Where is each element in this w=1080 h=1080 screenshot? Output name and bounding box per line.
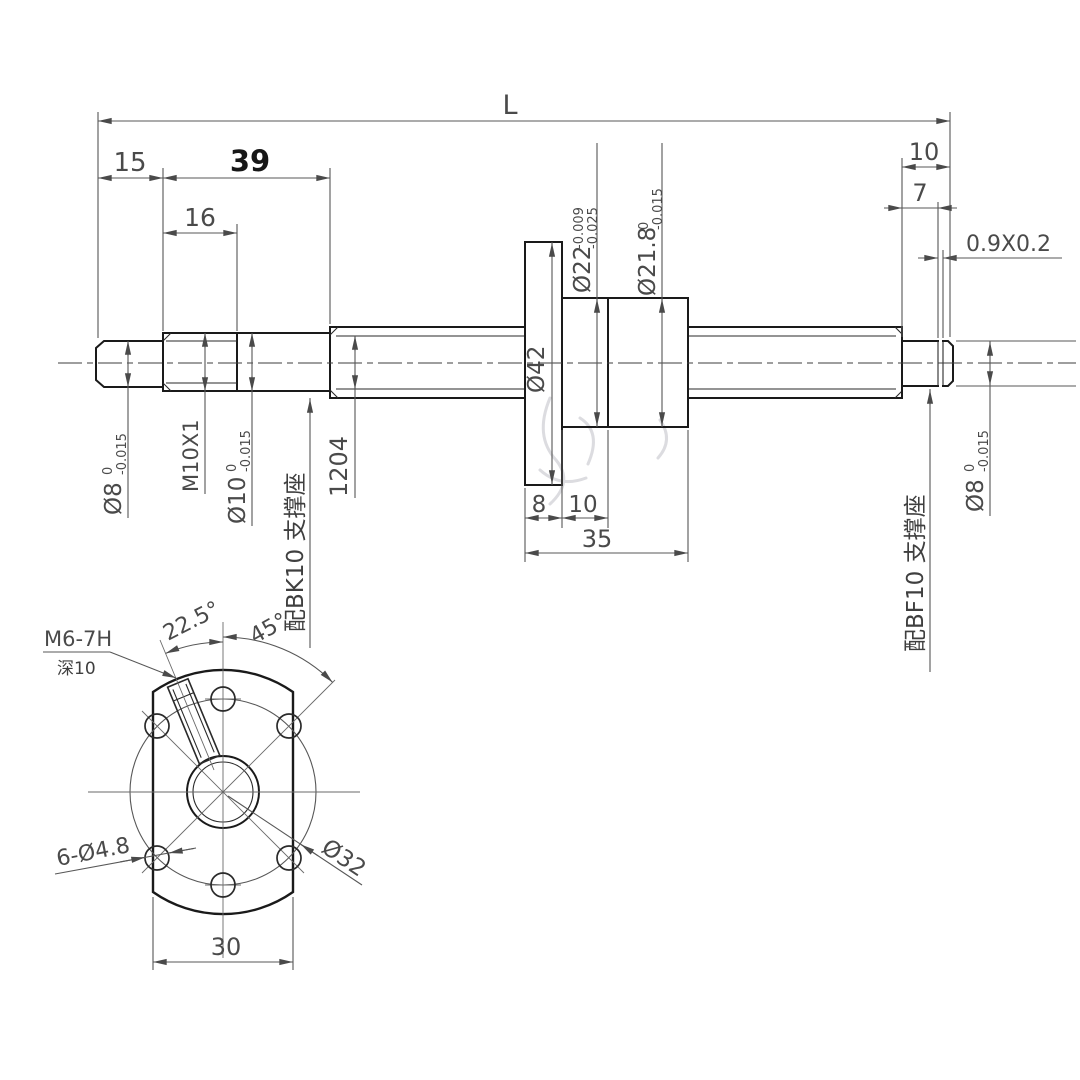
dim-width-across-flats-text: 30	[211, 933, 242, 961]
d218-label: Ø21.8	[635, 227, 661, 296]
d22-tol-lower: -0.025	[586, 207, 601, 249]
d10-label: Ø10	[225, 477, 251, 524]
d218-tol-upper: 0	[637, 222, 652, 230]
dim-overall-length: L	[98, 90, 950, 121]
dim-right-journal-text: 10	[909, 138, 940, 166]
dim-d10: Ø10 0 -0.015	[225, 333, 254, 526]
thread-spec-label: M10X1	[179, 419, 203, 492]
dim-thread-length: 16	[163, 203, 237, 233]
dim-flange-thickness-text: 8	[532, 492, 547, 518]
d218-tol-lower: -0.015	[651, 188, 666, 230]
dim-angle-tap-text: 22.5°	[159, 597, 224, 647]
leader-tap: M6-7H 深10	[43, 627, 176, 679]
side-view: L 15 39 16 Ø8	[58, 90, 1076, 672]
end-view: 22.5° 45° M6-7H 深10 6-Ø4.8	[43, 597, 370, 970]
d10-tol-lower: -0.015	[239, 430, 254, 472]
d22-label: Ø22	[570, 246, 596, 293]
d10-tol-upper: 0	[225, 464, 240, 472]
d8-left-tol-lower: -0.015	[115, 433, 130, 475]
dim-left-zone-text: 39	[230, 144, 270, 178]
bolt-holes-label: 6-Ø4.8	[54, 833, 132, 872]
dim-groove-size: 0.9X0.2	[918, 232, 1062, 258]
d8-right-tol-lower: -0.015	[977, 430, 992, 472]
d22-tol-upper: -0.009	[572, 207, 587, 249]
d8-right-tol-upper: 0	[963, 464, 978, 472]
d8-left-tol-upper: 0	[101, 467, 116, 475]
dim-angle-tap: 22.5°	[159, 597, 224, 654]
drawing-sheet: L 15 39 16 Ø8	[0, 0, 1080, 1080]
dim-d218: Ø21.8 0 -0.015	[635, 143, 666, 427]
bolt-circle-label: Ø32	[317, 834, 371, 882]
dim-left-end: 15	[98, 148, 163, 178]
faint-watermark	[540, 398, 667, 504]
dim-thread-spec: M10X1	[179, 333, 205, 494]
dim-left-zone: 39	[163, 144, 330, 178]
d8-left-label: Ø8	[101, 482, 127, 515]
dim-d8-left: Ø8 0 -0.015	[101, 341, 130, 518]
d8-right-label: Ø8	[963, 479, 989, 512]
tap-depth-label: 深10	[57, 659, 96, 679]
leader-bolt-holes: 6-Ø4.8	[54, 833, 196, 874]
flange-diameter-label: Ø42	[524, 346, 550, 393]
end-view-centerlines	[88, 622, 360, 958]
dim-d22: Ø22 -0.009 -0.025	[570, 143, 601, 427]
dimension-layer: L 15 39 16 Ø8	[98, 90, 1076, 672]
tap-label: M6-7H	[44, 627, 112, 651]
ballscrew-technical-drawing: L 15 39 16 Ø8	[0, 0, 1080, 1080]
bf10-label: 配BF10 支撑座	[903, 494, 929, 652]
dim-d8-right: Ø8 0 -0.015	[963, 341, 992, 516]
dim-groove-position: 7	[884, 179, 957, 208]
dim-groove-size-text: 0.9X0.2	[966, 232, 1051, 257]
dim-nut-length: 35	[525, 525, 688, 553]
dim-nut-length-text: 35	[582, 525, 613, 553]
dim-right-journal: 10	[902, 138, 950, 167]
leader-bk10: 配BK10 支撑座	[283, 398, 310, 648]
leader-bf10: 配BF10 支撑座	[903, 389, 930, 672]
dim-groove-position-text: 7	[912, 179, 927, 207]
screw-spec-label: 1204	[325, 436, 353, 497]
dim-nut-front: 10	[562, 492, 608, 518]
dim-thread-length-text: 16	[184, 203, 216, 232]
dim-overall-length-text: L	[502, 90, 517, 121]
leader-bolt-circle: Ø32	[228, 796, 370, 885]
bk10-label: 配BK10 支撑座	[283, 473, 309, 632]
dim-nut-front-text: 10	[568, 492, 597, 518]
dim-left-end-text: 15	[113, 148, 146, 178]
